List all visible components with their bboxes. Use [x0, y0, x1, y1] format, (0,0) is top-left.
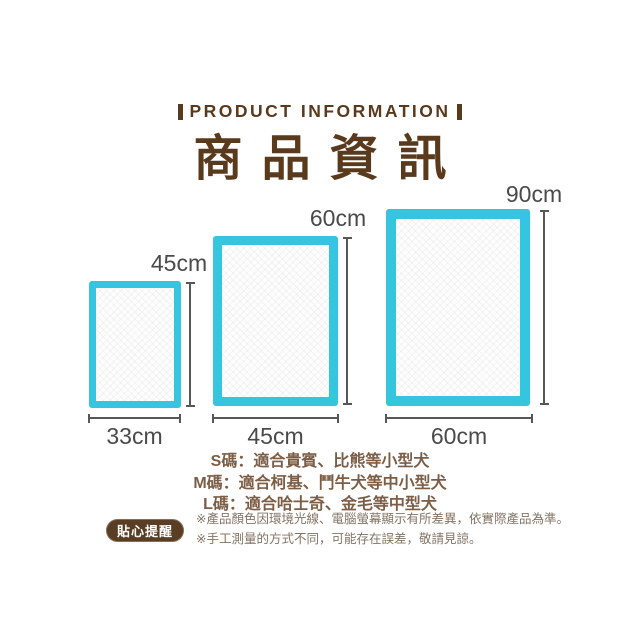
height-label-small: 45cm: [146, 250, 212, 277]
size-guide-line-s: S碼：適合貴賓、比熊等小型犬: [0, 451, 640, 473]
page-title: 商品資訊: [0, 119, 640, 190]
reminder-notes: ※產品顏色因環境光線、電腦螢幕顯示有所差異，依實際產品為準。 ※手工測量的方式不…: [196, 509, 569, 549]
pad-large: [386, 209, 530, 406]
height-measure-line-medium: [346, 237, 348, 405]
width-measure-line-medium: [212, 417, 339, 419]
height-label-large: 90cm: [501, 181, 567, 208]
pad-small: [89, 281, 181, 408]
reminder-badge: 貼心提醒: [106, 519, 184, 542]
height-label-medium: 60cm: [305, 205, 371, 232]
width-label-small: 33cm: [88, 423, 181, 450]
width-measure-line-large: [385, 417, 533, 419]
eyebrow-bar-left: [178, 104, 183, 120]
width-label-large: 60cm: [385, 423, 533, 450]
width-label-medium: 45cm: [212, 423, 339, 450]
eyebrow-bar-right: [457, 104, 462, 120]
pad-medium: [213, 236, 338, 406]
size-guide-line-m: M碼：適合柯基、鬥牛犬等中小型犬: [0, 473, 640, 495]
width-measure-line-small: [88, 417, 181, 419]
size-guide: S碼：適合貴賓、比熊等小型犬 M碼：適合柯基、鬥牛犬等中小型犬 L碼：適合哈士奇…: [0, 451, 640, 516]
reminder-note-1: ※產品顏色因環境光線、電腦螢幕顯示有所差異，依實際產品為準。: [196, 509, 569, 529]
height-measure-line-small: [189, 282, 191, 407]
reminder-note-2: ※手工測量的方式不同，可能存在誤差，敬請見諒。: [196, 529, 569, 549]
product-information-page: PRODUCT INFORMATION 商品資訊 45cm 60cm 90cm …: [0, 0, 640, 640]
height-measure-line-large: [543, 210, 545, 405]
